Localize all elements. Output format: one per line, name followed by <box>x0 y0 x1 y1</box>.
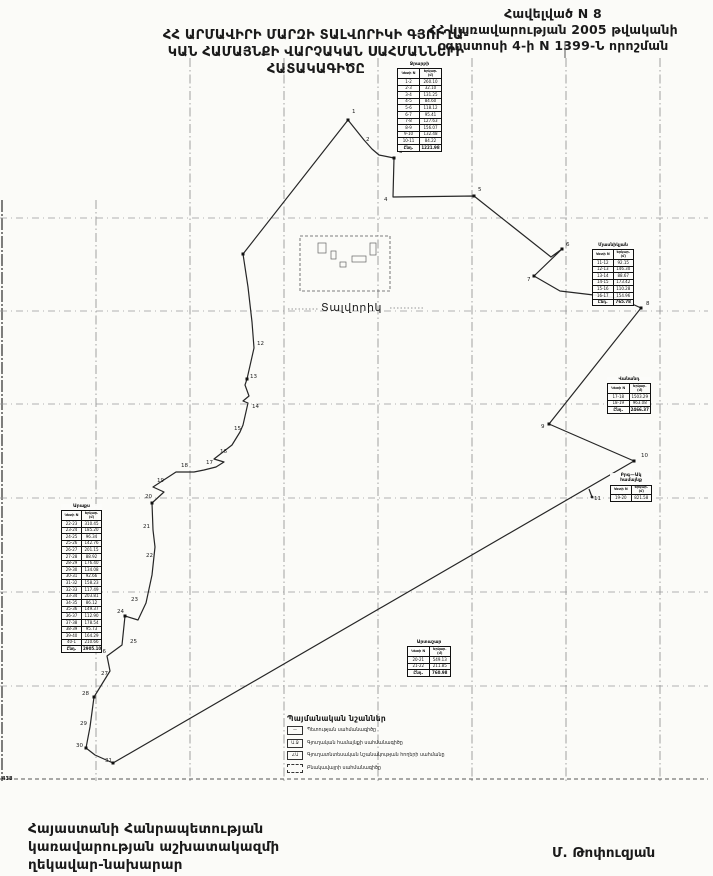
table-row: 27-2888.92 <box>62 554 102 561</box>
agricultural-land-icon: ∠Ա <box>287 751 303 760</box>
table-row: 7-8127.63 <box>398 118 442 125</box>
table-column-header: Երկար. (մ) <box>429 647 451 657</box>
table-row: 20-21549.13 <box>408 657 451 664</box>
table-total-row: Ընդ.2466.37 <box>608 407 651 414</box>
boundary-length-table: ԱրտաշարԿետի NԵրկար. (մ)20-21549.1321-222… <box>407 640 451 677</box>
boundary-length-table: ՄյասնիկյանԿետի NԵրկար. (մ)11-1292.1512-1… <box>592 243 634 306</box>
table-row: 38-3995.73 <box>62 626 102 633</box>
table-row: 13-1488.67 <box>593 273 634 280</box>
table-title: Մյասնիկյան <box>592 243 634 248</box>
table-row: 14-15173.42 <box>593 279 634 286</box>
svg-text:14: 14 <box>252 404 259 410</box>
scanned-map-page: Հավելված N 8 ՀՀ կառավարության 2005 թվակա… <box>0 0 713 876</box>
svg-text:15: 15 <box>234 426 241 432</box>
legend-item-label: Պետության սահմանագիծը <box>307 728 376 733</box>
legend-item: — Պետության սահմանագիծը <box>287 726 437 735</box>
table-row: 32-33117.49 <box>62 587 102 594</box>
svg-text:18: 18 <box>181 463 188 469</box>
table-row: 5-6118.12 <box>398 105 442 112</box>
settlement-label: Տալվորիկ <box>321 301 382 314</box>
svg-text:21: 21 <box>143 524 150 530</box>
table-column-header: Կետի N <box>408 647 430 657</box>
table-column-header: Կետի N <box>611 485 632 495</box>
table-title: Արտաշար <box>407 640 451 645</box>
table-row: 39-40164.29 <box>62 633 102 640</box>
svg-text:25: 25 <box>130 639 137 645</box>
community-border-icon: Ա.Ջ <box>287 739 303 748</box>
table-column-header: Կետի N <box>62 511 82 521</box>
table-title: Ջրարբի <box>397 62 442 67</box>
svg-text:1: 1 <box>352 109 356 115</box>
state-border-icon: — <box>287 726 303 735</box>
table-title: Վանանդ <box>607 377 651 382</box>
boundary-length-table: ԱրաքսԿետի NԵրկար. (մ)22-23310.4523-24185… <box>61 504 102 653</box>
table-column-header: Երկար. (մ) <box>631 485 652 495</box>
table-row: 4-584.60 <box>398 98 442 105</box>
table-row: 18-19963.08 <box>608 400 651 407</box>
svg-text:4: 4 <box>384 197 388 203</box>
table-total-row: Ընդ.2905.10 <box>62 646 102 653</box>
svg-text:12: 12 <box>257 341 264 347</box>
table-row: 3-4131.25 <box>398 92 442 99</box>
map-legend: Պայմանական նշաններ — Պետության սահմանագի… <box>287 714 437 776</box>
legend-item-label: Գյուղատնտեսական նշանակության հողերի սահմ… <box>307 753 445 758</box>
table-row: 35-36149.37 <box>62 606 102 613</box>
svg-text:27: 27 <box>101 671 108 677</box>
svg-text:30: 30 <box>76 743 83 749</box>
table-column-header: Կետի N <box>593 250 614 260</box>
table-row: 19-20821.58 <box>611 495 652 502</box>
table-column-header: Երկար. (մ) <box>613 250 634 260</box>
svg-text:28: 28 <box>82 691 89 697</box>
svg-text:29: 29 <box>80 721 87 727</box>
table-row: 21-22211.85 <box>408 663 451 670</box>
legend-item-label: Բնակավայրի սահմանագիծը <box>307 766 381 771</box>
svg-text:6: 6 <box>566 242 570 248</box>
table-row: 9-10132.48 <box>398 131 442 138</box>
table-row: 30-3192.66 <box>62 573 102 580</box>
svg-text:7: 7 <box>527 277 531 283</box>
table-row: 31-32158.23 <box>62 580 102 587</box>
svg-text:24: 24 <box>117 609 124 615</box>
legend-item: Ա.Ջ Գյուղական համայնքի սահմանագիծը <box>287 739 437 748</box>
table-row: 24-2596.34 <box>62 534 102 541</box>
table-row: 22-23310.45 <box>62 521 102 528</box>
svg-text:11: 11 <box>594 496 601 502</box>
svg-text:31: 31 <box>105 758 112 764</box>
svg-text:5: 5 <box>478 187 482 193</box>
svg-text:16: 16 <box>220 449 227 455</box>
table-column-header: Երկար. (մ) <box>420 69 442 79</box>
legend-item: ∠Ա Գյուղատնտեսական նշանակության հողերի ս… <box>287 751 437 760</box>
table-row: 10-1184.22 <box>398 138 442 145</box>
table-total-row: Ընդ.1221.98 <box>398 145 442 152</box>
svg-text:2: 2 <box>366 137 370 143</box>
svg-text:17: 17 <box>206 460 213 466</box>
table-row: 40-1210.66 <box>62 639 102 646</box>
svg-text:9: 9 <box>541 424 545 430</box>
table-row: 17-181503.29 <box>608 394 651 401</box>
svg-text:19: 19 <box>157 478 164 484</box>
table-row: 15-16110.28 <box>593 286 634 293</box>
svg-text:13: 13 <box>250 374 257 380</box>
svg-text:23: 23 <box>131 597 138 603</box>
table-row: 34-3586.12 <box>62 600 102 607</box>
table-row: 28-29176.40 <box>62 560 102 567</box>
svg-text:8: 8 <box>646 301 650 307</box>
table-row: 26-27201.15 <box>62 547 102 554</box>
table-column-header: Երկար. (մ) <box>82 511 102 521</box>
table-row: 25-26142.76 <box>62 540 102 547</box>
legend-item: Բնակավայրի սահմանագիծը <box>287 764 437 773</box>
table-column-header: Կետի N <box>398 69 420 79</box>
svg-text:20: 20 <box>145 494 152 500</box>
table-row: 33-34203.81 <box>62 593 102 600</box>
table-column-header: Կետի N <box>608 384 630 394</box>
table-row: 12-13146.30 <box>593 266 634 273</box>
table-row: 36-37112.90 <box>62 613 102 620</box>
table-column-header: Երկար. (մ) <box>629 384 651 394</box>
table-row: 2-332.10 <box>398 85 442 92</box>
table-row: 37-38178.54 <box>62 620 102 627</box>
legend-title: Պայմանական նշաններ <box>287 714 437 723</box>
settlement-border-icon <box>287 764 303 773</box>
table-row: 29-30134.08 <box>62 567 102 574</box>
boundary-length-table: ՋրարբիԿետի NԵրկար. (մ)1-2260.102-332.103… <box>397 62 442 152</box>
table-row: 6-795.41 <box>398 112 442 119</box>
table-title: Արաքս <box>61 504 102 509</box>
svg-text:10: 10 <box>641 453 648 459</box>
boundary-length-table: ՎանանդԿետի NԵրկար. (մ)17-181503.2918-199… <box>607 377 651 414</box>
table-title: Բրգ—Ակ համայնք <box>610 473 652 484</box>
svg-text:22: 22 <box>146 553 153 559</box>
table-total-row: Ընդ.765.78 <box>593 299 634 306</box>
legend-item-label: Գյուղական համայնքի սահմանագիծը <box>307 741 403 746</box>
boundary-length-table: Բրգ—Ակ համայնքԿետի NԵրկար. (մ)19-20821.5… <box>610 473 652 502</box>
table-row: 23-24185.20 <box>62 527 102 534</box>
table-total-row: Ընդ.760.98 <box>408 670 451 677</box>
table-row: 8-9156.07 <box>398 125 442 132</box>
table-row: 11-1292.15 <box>593 260 634 267</box>
sheet-number: 438 <box>2 776 12 782</box>
table-row: 16-17154.96 <box>593 293 634 300</box>
table-row: 1-2260.10 <box>398 79 442 86</box>
